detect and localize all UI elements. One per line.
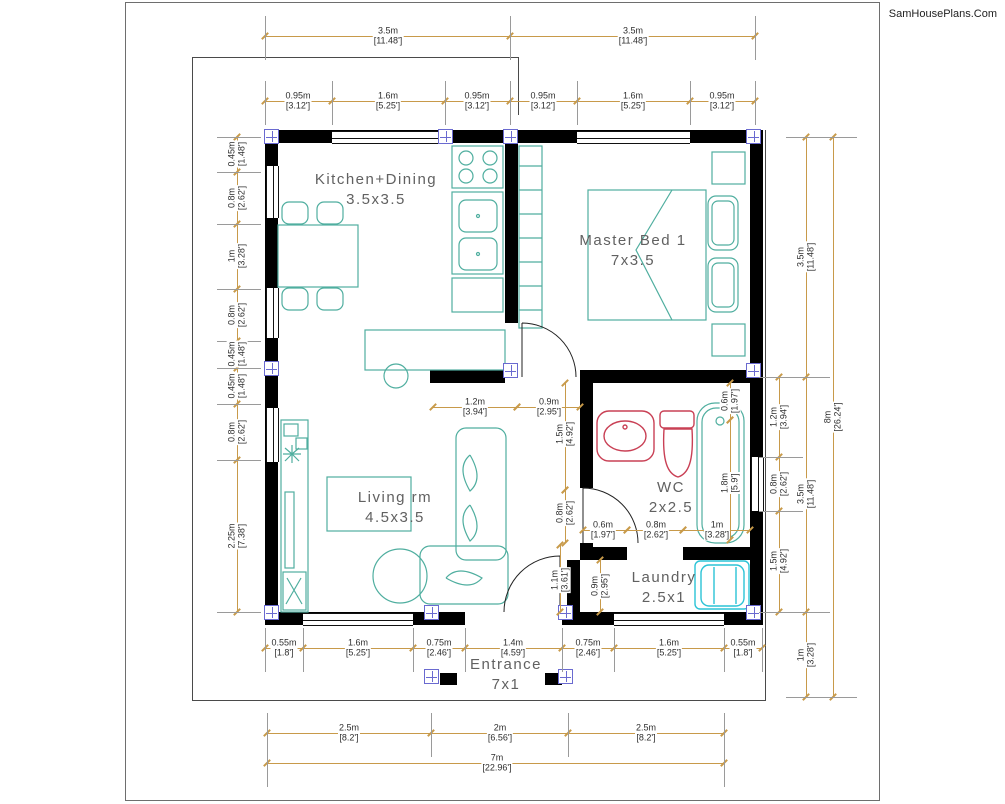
column-marker	[424, 669, 439, 684]
wall-wc-left-upper	[580, 383, 593, 488]
window-living-bottom	[303, 613, 413, 626]
column-marker	[438, 129, 453, 144]
room-label-entrance: Entrance 7x1	[470, 655, 542, 696]
wall-wc-laundry-left	[580, 547, 627, 560]
window-kitchen-left-1	[266, 166, 279, 218]
column-marker	[558, 605, 573, 620]
entrance-stub-left	[440, 673, 457, 685]
window-kitchen-top	[332, 131, 445, 144]
column-marker	[746, 605, 761, 620]
room-label-wc: WC 2x2.5	[649, 478, 693, 519]
room-name: Entrance	[470, 655, 542, 675]
wall-master-wc	[580, 370, 763, 383]
room-name: Kitchen+Dining	[315, 170, 437, 190]
room-size: 4.5x3.5	[358, 508, 432, 528]
room-size: 7x3.5	[579, 251, 686, 271]
column-marker	[424, 605, 439, 620]
room-name: Laundry	[632, 568, 697, 588]
room-name: Living rm	[358, 488, 432, 508]
room-size: 2.5x1	[632, 588, 697, 608]
room-label-laundry: Laundry 2.5x1	[632, 568, 697, 609]
room-label-master: Master Bed 1 7x3.5	[579, 231, 686, 272]
column-marker	[558, 669, 573, 684]
wall-living-kitchen	[430, 370, 505, 383]
wall-wc-laundry-right	[683, 547, 763, 560]
column-marker	[503, 129, 518, 144]
entrance-door-opening	[465, 612, 562, 625]
sheet-border-step	[518, 57, 519, 115]
room-name: WC	[649, 478, 693, 498]
sheet-border-top	[192, 57, 519, 58]
window-living-left	[266, 408, 279, 462]
window-laundry-bottom	[614, 613, 724, 626]
wall-kitchen-master	[505, 143, 518, 323]
watermark-text: SamHousePlans.Com	[889, 8, 997, 20]
floor-plan-page: SamHousePlans.Com	[0, 0, 1005, 804]
column-marker	[746, 129, 761, 144]
column-marker	[264, 361, 279, 376]
room-label-kitchen: Kitchen+Dining 3.5x3.5	[315, 170, 437, 211]
window-wc-right	[751, 457, 764, 511]
room-label-living: Living rm 4.5x3.5	[358, 488, 432, 529]
room-size: 7x1	[470, 675, 542, 695]
sheet-border-left	[192, 57, 193, 700]
sheet-border-bottom	[192, 700, 766, 701]
window-kitchen-left-2	[266, 288, 279, 338]
window-master-top	[577, 131, 690, 144]
room-size: 2x2.5	[649, 498, 693, 518]
sheet-border-right	[765, 130, 766, 700]
column-marker	[746, 363, 761, 378]
room-name: Master Bed 1	[579, 231, 686, 251]
column-marker	[503, 363, 518, 378]
room-size: 3.5x3.5	[315, 190, 437, 210]
column-marker	[264, 129, 279, 144]
column-marker	[264, 605, 279, 620]
